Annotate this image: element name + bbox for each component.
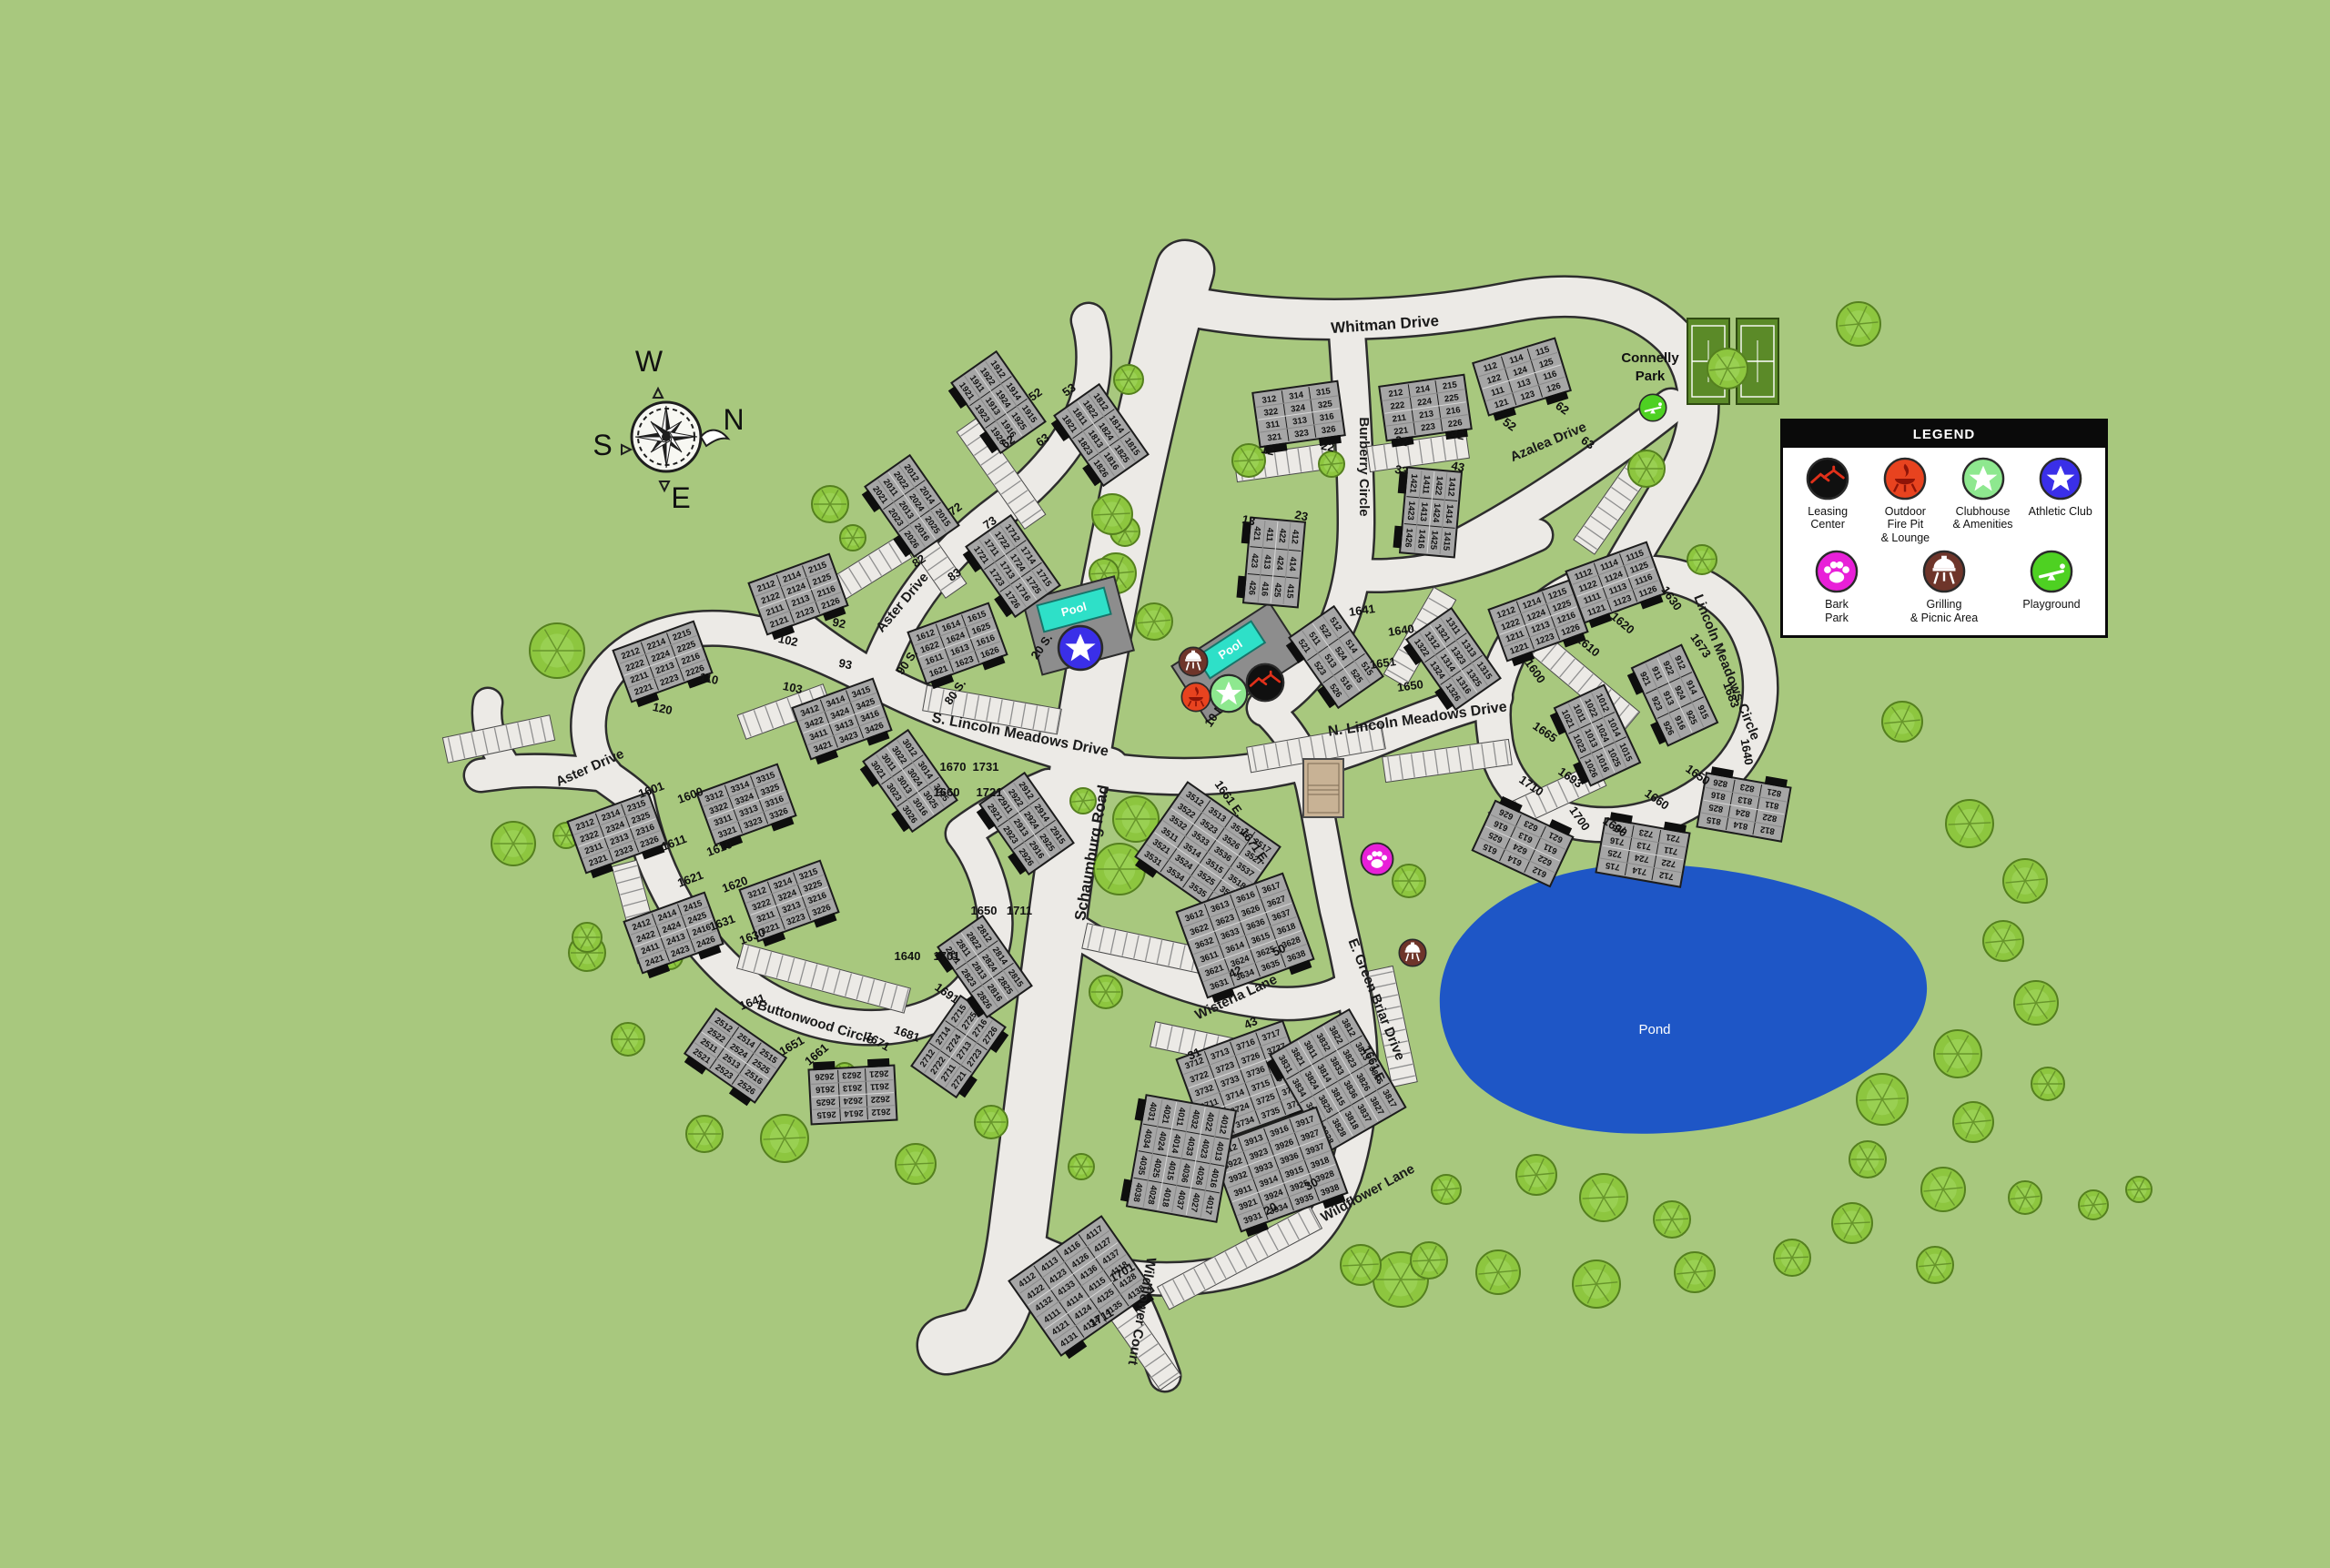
address-marker: 43 [1450, 459, 1465, 475]
unit-number: 326 [1321, 424, 1336, 436]
unit-number: 2625 [815, 1097, 836, 1108]
unit-number: 421 [1251, 526, 1261, 541]
unit-number: 416 [1259, 582, 1270, 597]
tree-icon [530, 623, 584, 678]
legend-item-leasing: LeasingCenter [1789, 457, 1866, 531]
address-marker: 22 [1320, 439, 1335, 455]
legend-label: OutdoorFire Pit& Lounge [1881, 505, 1930, 544]
athletic-icon [2039, 457, 2082, 501]
tree-icon [1628, 450, 1665, 487]
clubhouse-map-icon [1209, 673, 1249, 713]
firepit-icon [1883, 457, 1927, 501]
tree-icon [975, 1106, 1008, 1138]
unit-number: 1412 [1445, 477, 1457, 497]
svg-text:Park: Park [1636, 369, 1666, 384]
tree-icon [1573, 1260, 1620, 1308]
unit-number: 312 [1261, 394, 1277, 406]
community-site-map: PondPoolPool3123143153223243253113133163… [0, 0, 2330, 1568]
address-marker: 120 [652, 700, 674, 717]
legend-label: Grilling& Picnic Area [1910, 598, 1978, 624]
unit-number: 313 [1292, 415, 1307, 427]
tree-icon [1341, 1245, 1381, 1285]
unit-number: 2622 [870, 1093, 890, 1104]
building-cluster: 2612261426152622262426252611261326162621… [808, 1058, 897, 1125]
legend-row-1: LeasingCenter OutdoorFire Pit& Lounge Cl… [1783, 448, 2105, 548]
unit-number: 314 [1289, 390, 1305, 402]
legend-item-clubhouse: Clubhouse& Amenities [1945, 457, 2021, 531]
tree-icon [1580, 1174, 1627, 1221]
address-marker: 1711 [1007, 904, 1032, 917]
unit-number: 426 [1246, 581, 1257, 596]
unit-number: 315 [1315, 386, 1332, 398]
unit-number: 1416 [1415, 529, 1427, 549]
address-marker: 1650 [971, 904, 998, 917]
address-marker: 1650 [1396, 677, 1424, 694]
tree-icon [1476, 1250, 1520, 1294]
address-marker: 93 [837, 656, 853, 673]
unit-number: 1425 [1428, 530, 1440, 551]
building-cluster: 1412141414151422142414251411141314161421… [1393, 467, 1462, 558]
tree-icon [1232, 444, 1265, 477]
pond-label: Pond [1638, 1022, 1670, 1037]
unit-number: 1415 [1441, 531, 1453, 552]
unit-number: 2611 [869, 1080, 889, 1091]
unit-number: 1423 [1405, 501, 1417, 521]
grill-map-icon [1398, 938, 1427, 967]
tree-icon [1857, 1074, 1908, 1125]
playground-icon [2030, 550, 2073, 593]
unit-number: 216 [1445, 405, 1461, 417]
unit-number: 1413 [1418, 501, 1430, 521]
address-marker: 1651 [776, 1033, 806, 1057]
tree-icon [1092, 494, 1132, 534]
unit-number: 222 [1390, 400, 1405, 412]
address-marker: 1641 [1348, 602, 1376, 619]
address-marker: 1721 [977, 785, 1003, 799]
unit-number: 412 [1289, 529, 1300, 544]
legend-row-2: BarkPark Grilling& Picnic Area Playgroun… [1783, 548, 2105, 635]
tree-icon [1114, 365, 1143, 394]
legend-label: LeasingCenter [1808, 505, 1848, 531]
unit-number: 323 [1293, 428, 1309, 440]
tree-icon [1774, 1239, 1810, 1276]
grill-icon [1178, 646, 1209, 677]
address-marker: 1630 [737, 926, 766, 947]
address-marker: 32 [1393, 433, 1409, 450]
tree-icon [2126, 1177, 2152, 1202]
unit-number: 211 [1392, 412, 1407, 424]
unit-number: 2626 [815, 1071, 835, 1082]
unit-number: 321 [1267, 431, 1283, 443]
address-marker: 1620 [1608, 610, 1637, 637]
unit-number: 2616 [815, 1084, 836, 1095]
bark-icon [1815, 550, 1859, 593]
tree-icon [1882, 702, 1922, 742]
compass-letter: N [723, 403, 744, 436]
svg-text:Connelly: Connelly [1621, 350, 1679, 366]
tree-icon [1069, 1154, 1094, 1179]
legend-item-grill: Grilling& Picnic Area [1906, 550, 1982, 624]
bark-map-icon [1360, 842, 1394, 876]
address-marker: 103 [782, 679, 804, 696]
unit-number: 423 [1249, 553, 1260, 569]
building-cluster: 1912191419151922192419251911191319161921… [946, 351, 1046, 457]
tree-icon [572, 923, 602, 952]
tree-icon [1946, 800, 1993, 847]
tree-icon [1089, 976, 1122, 1008]
address-marker: 1610 [1574, 632, 1603, 660]
unit-number: 1424 [1431, 503, 1443, 524]
legend-label: Athletic Club [2029, 505, 2092, 518]
unit-number: 224 [1417, 396, 1433, 408]
unit-number: 311 [1265, 419, 1281, 430]
leasing-icon [1806, 457, 1849, 501]
unit-number: 2613 [843, 1082, 863, 1093]
tree-icon [1837, 302, 1880, 346]
unit-number: 2612 [871, 1106, 891, 1117]
unit-number: 316 [1319, 411, 1334, 423]
compass-letter: W [635, 345, 664, 378]
unit-number: 324 [1291, 402, 1307, 414]
tree-icon [1953, 1102, 1993, 1142]
unit-number: 424 [1274, 555, 1285, 571]
unit-number: 215 [1442, 379, 1458, 391]
unit-number: 415 [1284, 583, 1295, 599]
address-marker: 42 [1450, 427, 1465, 443]
tree-icon [2031, 1067, 2064, 1100]
unit-number: 1421 [1407, 473, 1419, 494]
address-marker: 1731 [973, 760, 999, 774]
firepit-map-icon [1180, 682, 1211, 713]
unit-number: 225 [1444, 392, 1460, 404]
address-marker: 1670 [940, 760, 967, 774]
address-marker: 23 [1293, 508, 1309, 524]
unit-number: 1411 [1420, 475, 1432, 495]
address-marker: 33 [1393, 462, 1409, 479]
unit-number: 422 [1276, 528, 1287, 543]
tree-icon [1516, 1155, 1556, 1195]
bark-icon [1360, 842, 1394, 876]
compass-letter: E [671, 481, 690, 514]
tree-icon [2003, 859, 2047, 903]
unit-number: 2623 [842, 1069, 862, 1080]
legend-item-playground: Playground [2013, 550, 2090, 611]
tree-icon [2014, 981, 2058, 1025]
tree-icon [1983, 921, 2023, 961]
map-legend: LEGEND LeasingCenter OutdoorFire Pit& Lo… [1780, 419, 2108, 638]
tree-icon [491, 822, 535, 865]
tree-icon [1687, 545, 1717, 574]
building-cluster: 2512251425152522252425252511251325162521… [681, 1008, 786, 1108]
unit-number: 223 [1420, 421, 1435, 433]
building-cluster: 3012301430153022302430253011301330163021… [857, 730, 957, 835]
tree-icon [1849, 1141, 1886, 1178]
tree-icon [1917, 1247, 1953, 1283]
tree-icon [1921, 1168, 1965, 1211]
legend-item-bark: BarkPark [1798, 550, 1875, 624]
leasing-icon [1245, 663, 1285, 703]
grill-icon [1922, 550, 1966, 593]
unit-number: 411 [1263, 527, 1274, 542]
grill-icon [1398, 938, 1427, 967]
tree-icon [1707, 349, 1747, 389]
building-cluster: 412414415422424425411413416421423426 [1236, 517, 1305, 608]
unit-number: 1426 [1403, 528, 1414, 548]
maintenance-structure [1303, 759, 1343, 817]
unit-number: 413 [1261, 554, 1272, 570]
unit-number: 414 [1287, 556, 1298, 572]
tree-icon [1654, 1201, 1690, 1238]
address-marker: 1660 [934, 785, 960, 799]
tree-icon [612, 1023, 644, 1056]
unit-number: 1422 [1433, 476, 1444, 496]
pond: Pond [1440, 864, 1927, 1133]
unit-number: 212 [1388, 388, 1403, 400]
compass-letter: S [593, 429, 612, 461]
tree-icon [1094, 844, 1145, 895]
building-cluster: 912914915922924925911913916921923926 [1626, 645, 1717, 749]
athletic-icon [1057, 624, 1104, 672]
unit-number: 425 [1271, 582, 1282, 598]
playground-icon [1638, 393, 1667, 422]
athletic-map-icon [1057, 624, 1104, 672]
tree-icon [1432, 1175, 1461, 1204]
address-marker: 1701 [934, 949, 960, 963]
legend-title: LEGEND [1783, 421, 2105, 448]
unit-number: 2614 [843, 1108, 863, 1118]
leasing-map-icon [1245, 663, 1285, 703]
tree-icon [840, 525, 866, 551]
address-marker: 13 [1241, 512, 1256, 529]
unit-number: 2624 [843, 1095, 863, 1106]
unit-number: 2615 [816, 1108, 836, 1119]
address-marker: 1621 [675, 868, 704, 890]
tree-icon [2079, 1190, 2108, 1219]
unit-number: 325 [1317, 399, 1333, 410]
compass-rose: WNSE [593, 345, 744, 514]
address-marker: 1640 [895, 949, 921, 963]
tree-icon [1832, 1203, 1872, 1243]
legend-item-athletic: Athletic Club [2022, 457, 2099, 518]
tree-icon [761, 1115, 808, 1162]
playground-map-icon [1638, 393, 1667, 422]
street-label: Burberry Circle [1356, 417, 1372, 516]
tree-icon [1393, 865, 1425, 897]
tree-icon [2009, 1181, 2041, 1214]
unit-number: 213 [1418, 409, 1433, 420]
unit-number: 322 [1263, 407, 1279, 419]
legend-item-firepit: OutdoorFire Pit& Lounge [1867, 457, 1943, 544]
firepit-icon [1180, 682, 1211, 713]
tree-icon [1934, 1030, 1981, 1077]
building-cluster: 3312331433153322332433253311331333163321… [697, 764, 799, 852]
tree-icon [896, 1144, 936, 1184]
unit-number: 2621 [868, 1067, 888, 1078]
address-marker: 12 [1260, 442, 1275, 459]
address-marker: 92 [831, 615, 846, 632]
unit-number: 214 [1415, 384, 1432, 396]
tree-icon [1411, 1242, 1447, 1279]
clubhouse-icon [1209, 673, 1249, 713]
address-marker: 110 [698, 670, 720, 687]
grill-map-icon [1178, 646, 1209, 677]
legend-label: Playground [2022, 598, 2080, 611]
tree-icon [1136, 603, 1172, 640]
site-map-canvas: PondPoolPool3123143153223243253113133163… [0, 0, 2330, 1568]
tree-icon [686, 1116, 723, 1152]
legend-label: BarkPark [1825, 598, 1849, 624]
tree-icon [812, 486, 848, 522]
legend-label: Clubhouse& Amenities [1953, 505, 2013, 531]
clubhouse-icon [1961, 457, 2005, 501]
unit-number: 1414 [1443, 504, 1454, 525]
building-cluster: 4012401340164017402240234026402740324033… [1119, 1094, 1236, 1222]
address-marker: 1610 [704, 837, 734, 859]
tree-icon [1319, 451, 1344, 477]
tree-icon [1675, 1252, 1715, 1292]
